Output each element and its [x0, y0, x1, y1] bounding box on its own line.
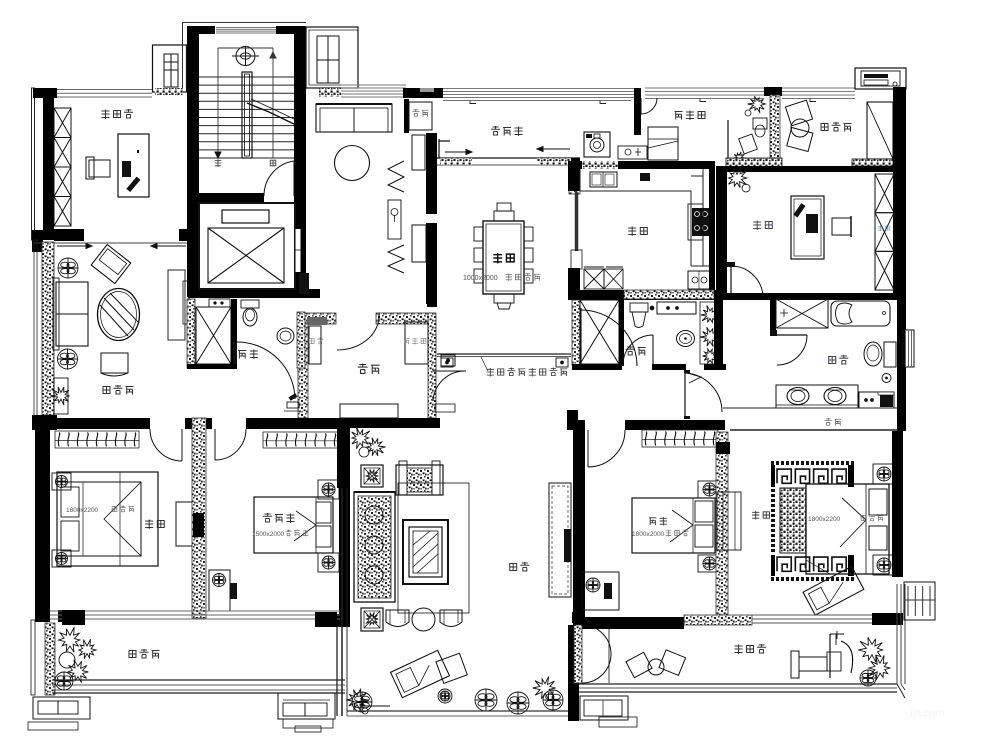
svg-text:jia.com: jia.com — [909, 707, 945, 719]
svg-text:1000x2000: 1000x2000 — [463, 275, 498, 282]
svg-text:1800x2000: 1800x2000 — [632, 531, 665, 538]
svg-text:1800x2200: 1800x2200 — [808, 516, 841, 523]
svg-text:1500x2000: 1500x2000 — [252, 531, 285, 538]
svg-text:1800x2200: 1800x2200 — [66, 507, 99, 514]
